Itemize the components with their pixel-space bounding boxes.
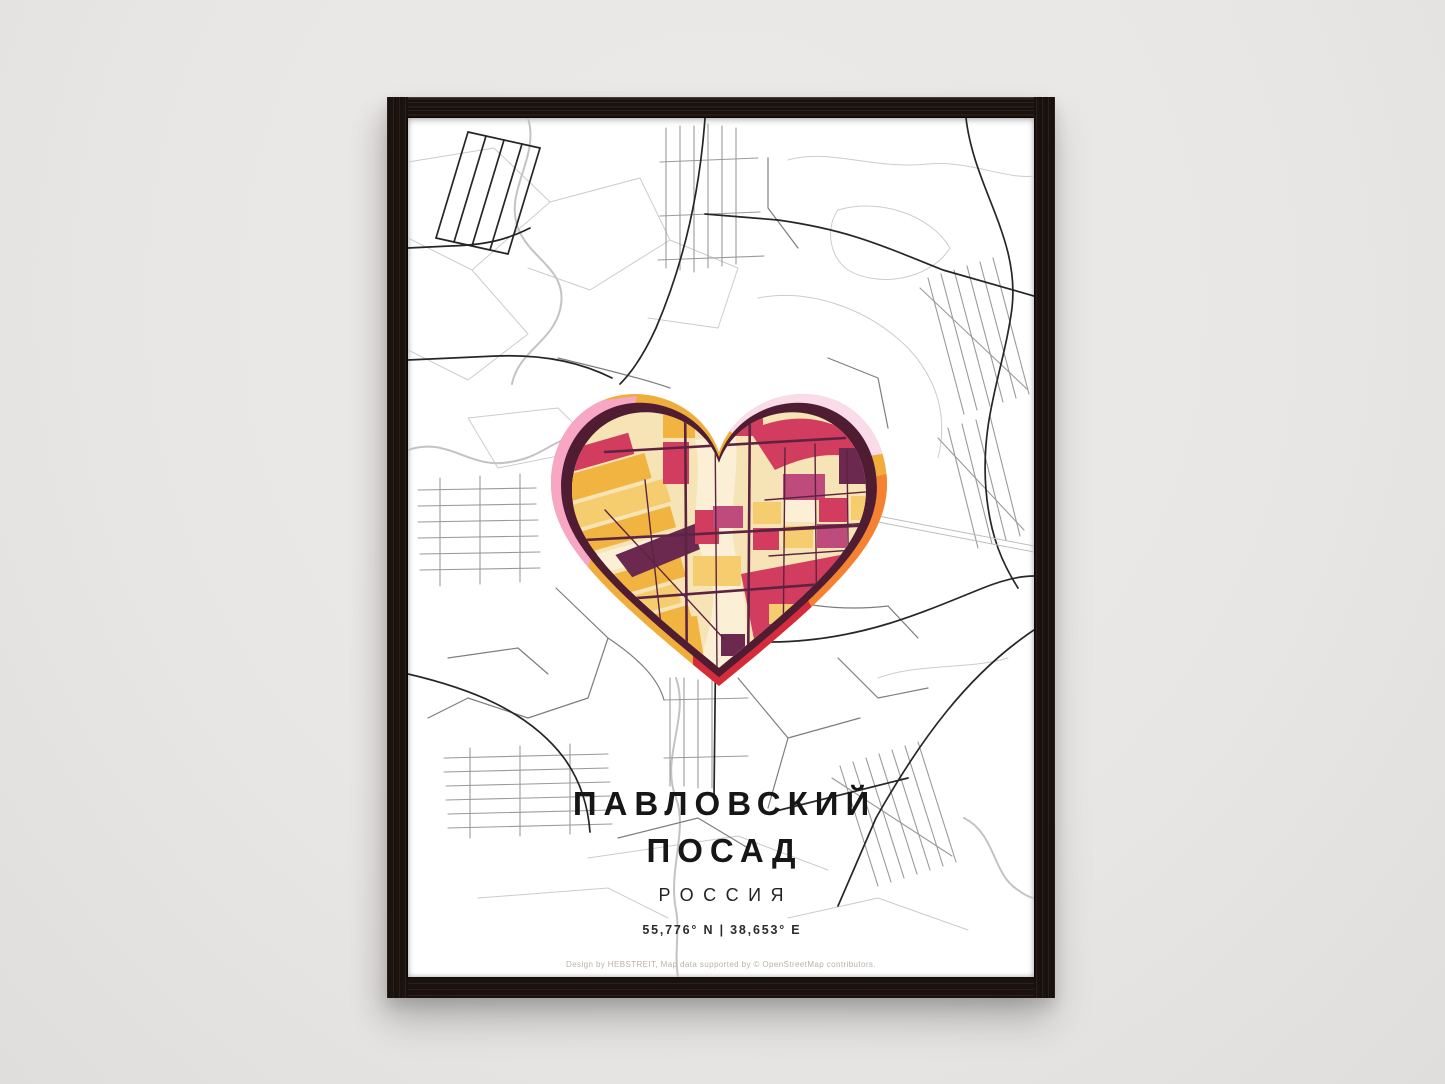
poster-coordinates: 55,776° N | 38,653° E	[408, 923, 1034, 937]
poster-title-line-2: ПОСАД	[408, 827, 1034, 874]
poster-title-line-1: ПАВЛОВСКИЙ	[408, 780, 1034, 827]
heart-map-graphic	[545, 390, 893, 690]
poster-credit: Design by HEBSTREIT, Map data supported …	[408, 960, 1034, 969]
map-poster: ПАВЛОВСКИЙ ПОСАД РОССИЯ 55,776° N | 38,6…	[408, 118, 1034, 977]
frame-edge-left	[387, 97, 408, 998]
poster-frame: ПАВЛОВСКИЙ ПОСАД РОССИЯ 55,776° N | 38,6…	[387, 97, 1055, 998]
frame-edge-bottom	[387, 977, 1055, 998]
railway	[878, 516, 1034, 552]
poster-text-block: ПАВЛОВСКИЙ ПОСАД РОССИЯ 55,776° N | 38,6…	[408, 780, 1034, 937]
frame-edge-top	[387, 97, 1055, 119]
wall-background: ПАВЛОВСКИЙ ПОСАД РОССИЯ 55,776° N | 38,6…	[0, 0, 1445, 1084]
frame-edge-right	[1034, 97, 1055, 998]
poster-subtitle: РОССИЯ	[408, 885, 1034, 906]
